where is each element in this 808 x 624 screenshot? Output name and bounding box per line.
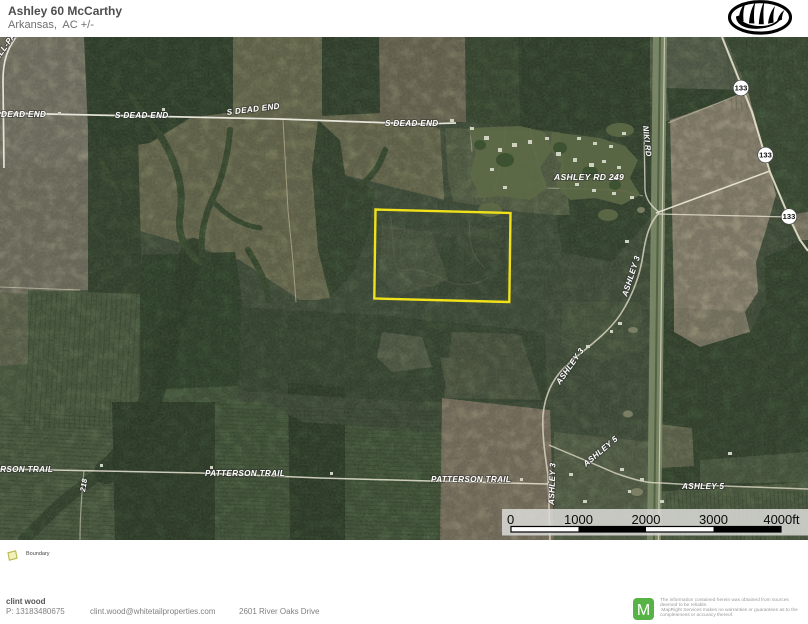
- svg-text:PATTERSON TRAIL: PATTERSON TRAIL: [205, 469, 285, 478]
- svg-text:1000: 1000: [564, 512, 593, 527]
- svg-text:S DEAD END: S DEAD END: [115, 111, 169, 120]
- svg-text:M: M: [637, 602, 650, 619]
- svg-text:PATTERSON TRAIL: PATTERSON TRAIL: [0, 465, 53, 474]
- svg-text:2000: 2000: [632, 512, 661, 527]
- svg-text:ASHLEY 5: ASHLEY 5: [681, 482, 724, 491]
- svg-text:ASHLEY RD 249: ASHLEY RD 249: [553, 172, 624, 182]
- svg-text:0: 0: [507, 512, 514, 527]
- svg-text:4000ft: 4000ft: [763, 512, 800, 527]
- svg-text:PATTERSON TRAIL: PATTERSON TRAIL: [431, 475, 511, 484]
- svg-text:3000: 3000: [699, 512, 728, 527]
- svg-text:133: 133: [759, 151, 772, 160]
- svg-text:S DEAD END: S DEAD END: [385, 119, 439, 128]
- svg-text:133: 133: [735, 84, 748, 93]
- svg-text:133: 133: [783, 212, 796, 221]
- svg-text:ASHLEY 3: ASHLEY 3: [547, 462, 558, 506]
- svg-text:DEAD END: DEAD END: [1, 110, 46, 119]
